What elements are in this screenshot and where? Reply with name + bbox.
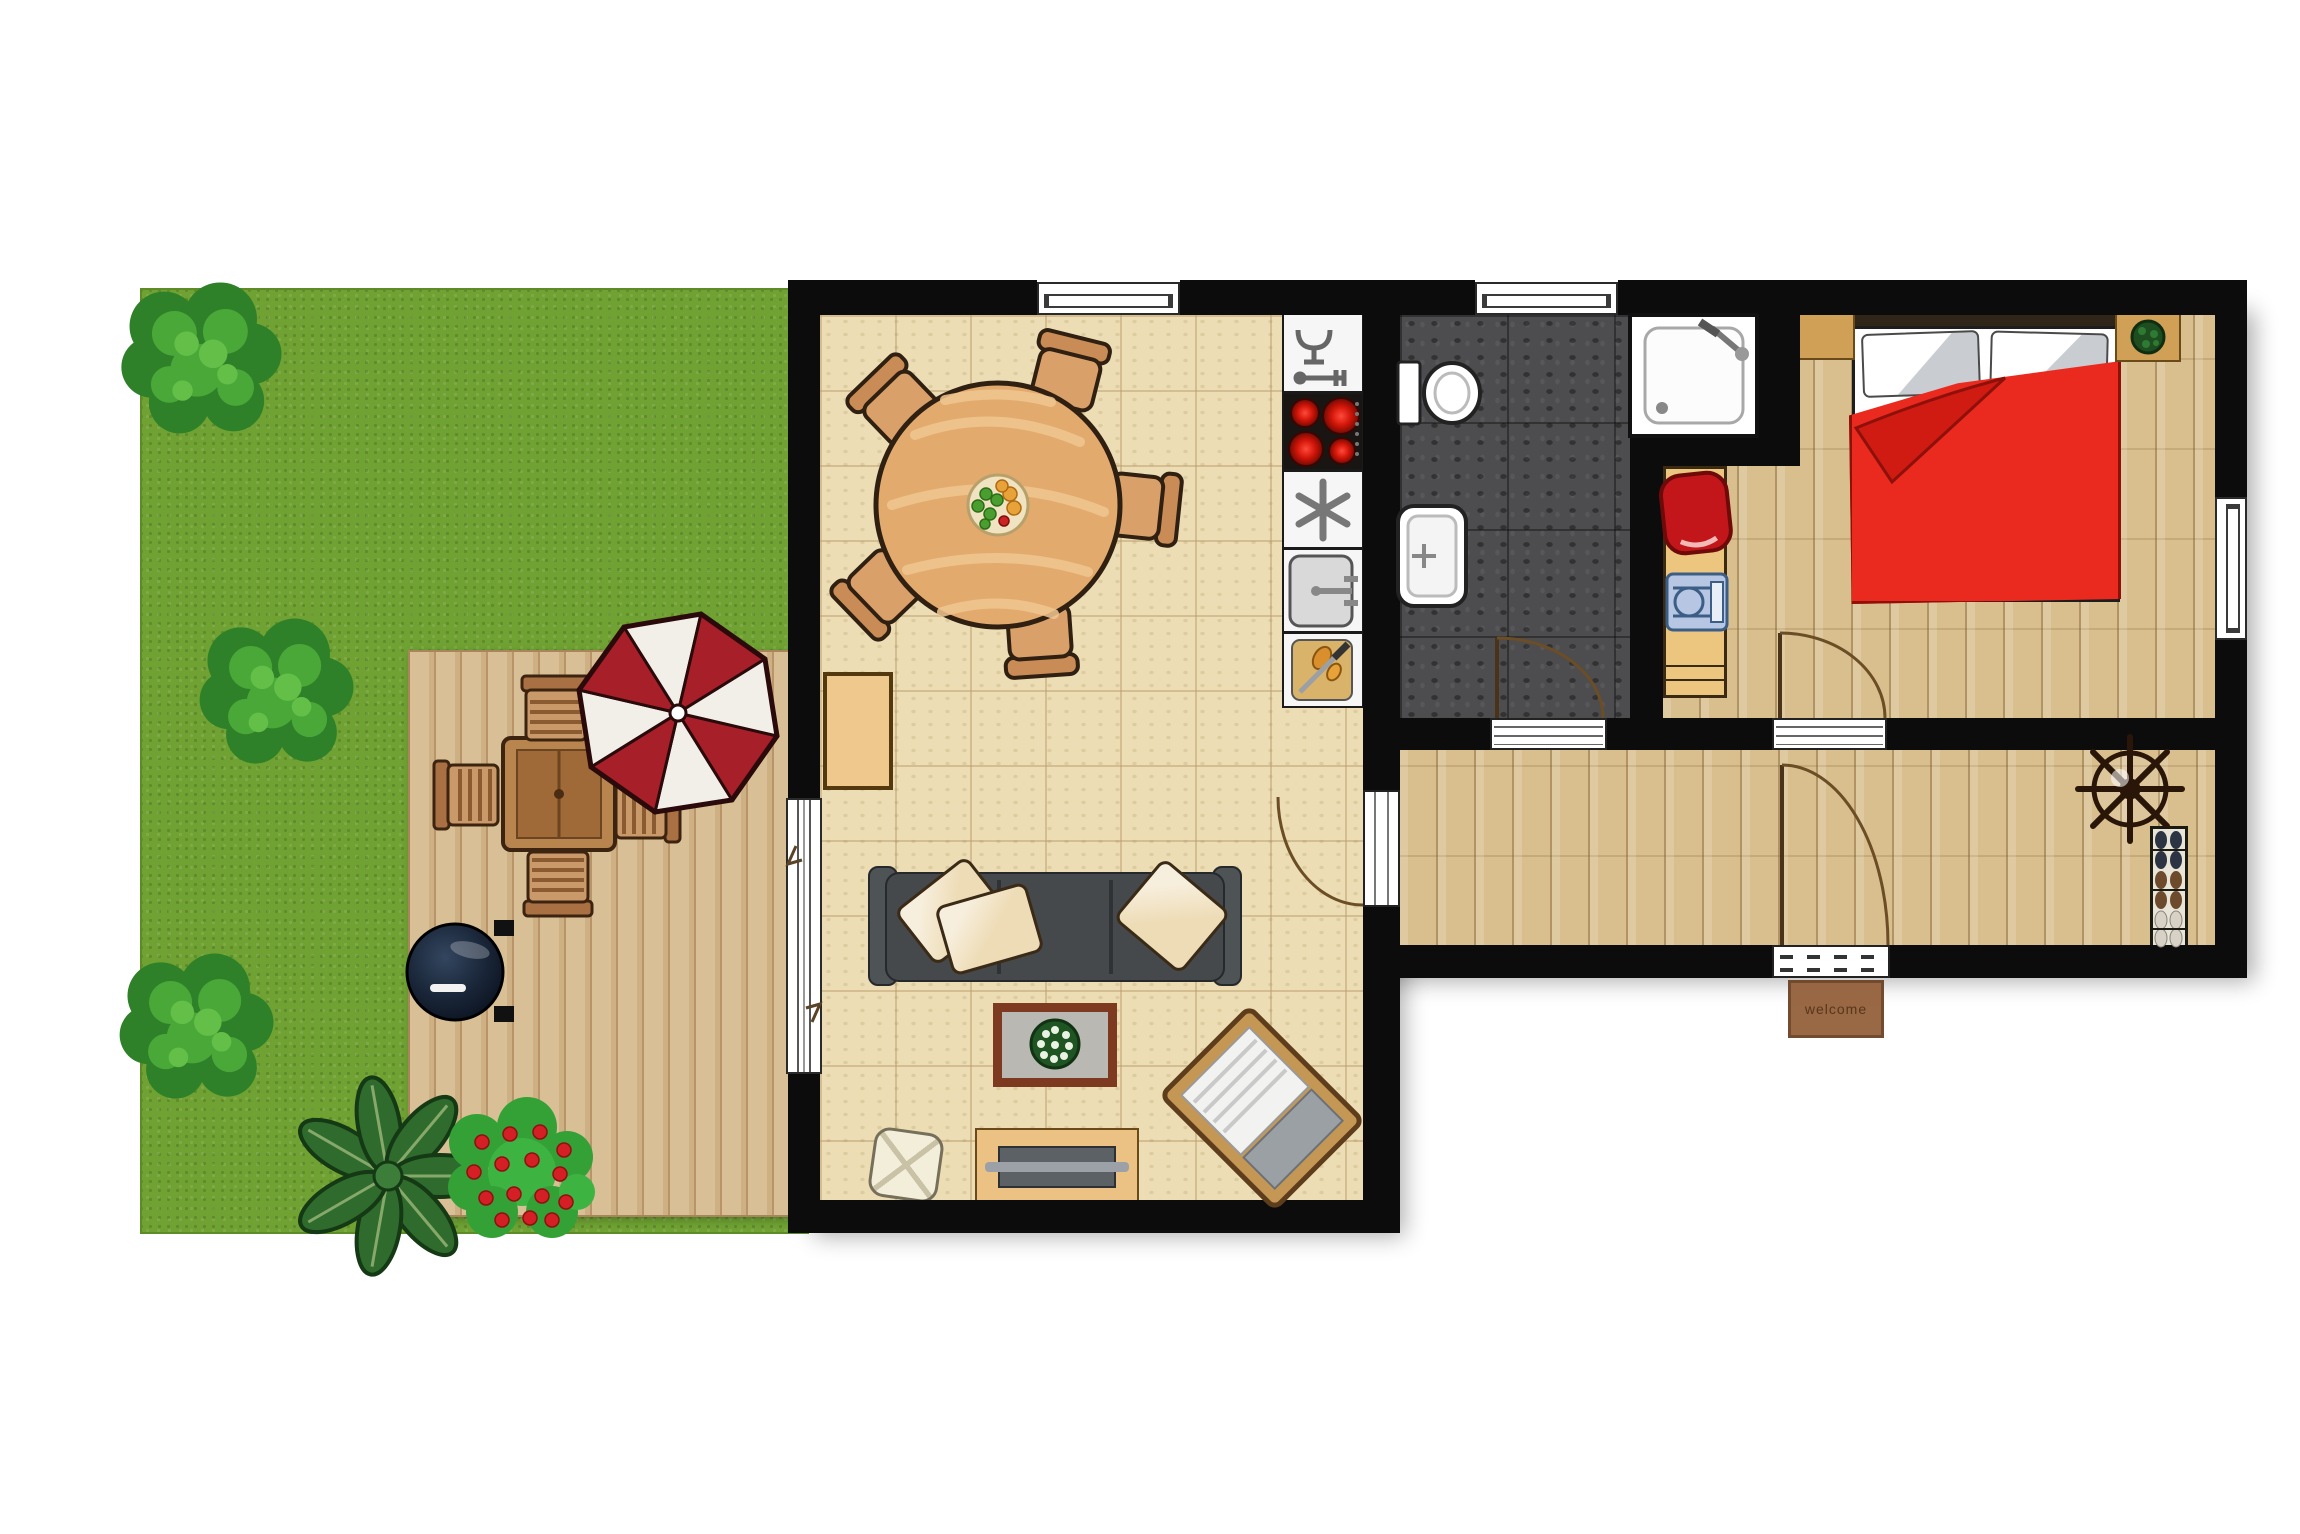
wall-top-b (1180, 280, 1475, 315)
wall-top-c (1618, 280, 2247, 315)
living-room-window (1037, 282, 1180, 315)
freezer (1282, 470, 1364, 549)
kitchen-counter (1282, 632, 1364, 708)
window-glass (2226, 504, 2240, 633)
wall-living-bottom (788, 1200, 1400, 1233)
tv-soundbar (985, 1162, 1129, 1172)
bedroom-door-sill (1772, 718, 1887, 750)
nightstand-left (1795, 312, 1855, 360)
front-door-sill (1772, 945, 1890, 978)
floor-plan-canvas: welcome (0, 0, 2300, 1534)
wall-shower-nook-bottom (1633, 436, 1800, 466)
wall-top-a (788, 280, 1037, 315)
desk (1663, 466, 1727, 698)
wall-hall-bottom-b (1890, 945, 2247, 978)
doormat: welcome (1788, 980, 1884, 1038)
kitchen-sink-unit (1282, 548, 1364, 633)
wall-hall-bottom-a (1400, 945, 1772, 978)
hallway-floor (1400, 750, 2215, 945)
doormat-text: welcome (1805, 1001, 1867, 1017)
wall-right-upper (2215, 280, 2247, 497)
wall-bath-bottom (1400, 718, 1490, 750)
wall-living-right-upper (1363, 315, 1400, 790)
coffee-table (993, 1003, 1117, 1087)
wall-right-lower (2215, 640, 2247, 978)
nightstand-right (2115, 312, 2181, 362)
bathroom-door-sill (1490, 718, 1607, 750)
window-glass (1482, 294, 1611, 308)
wooden-deck (408, 650, 792, 1217)
cooktop (1282, 392, 1364, 471)
wall-left-upper (788, 280, 820, 798)
side-table (823, 672, 893, 790)
pouf (866, 1125, 945, 1204)
sliding-patio-door (786, 798, 822, 1074)
window-glass (1044, 294, 1173, 308)
wall-living-right-lower (1363, 907, 1400, 1200)
living-room-door-leaf (1363, 790, 1400, 907)
sofa-seam (1109, 880, 1113, 974)
bathroom-window (1475, 282, 1618, 315)
shoe-rack (2150, 826, 2188, 948)
wall-mid-bottom (1607, 718, 1772, 750)
wall-bath-bedroom-divider (1630, 438, 1663, 718)
bedroom-window (2215, 497, 2247, 640)
wall-bedroom-bottom (1887, 718, 2215, 750)
bathroom-floor (1400, 315, 1630, 718)
dishwasher (1282, 313, 1364, 393)
